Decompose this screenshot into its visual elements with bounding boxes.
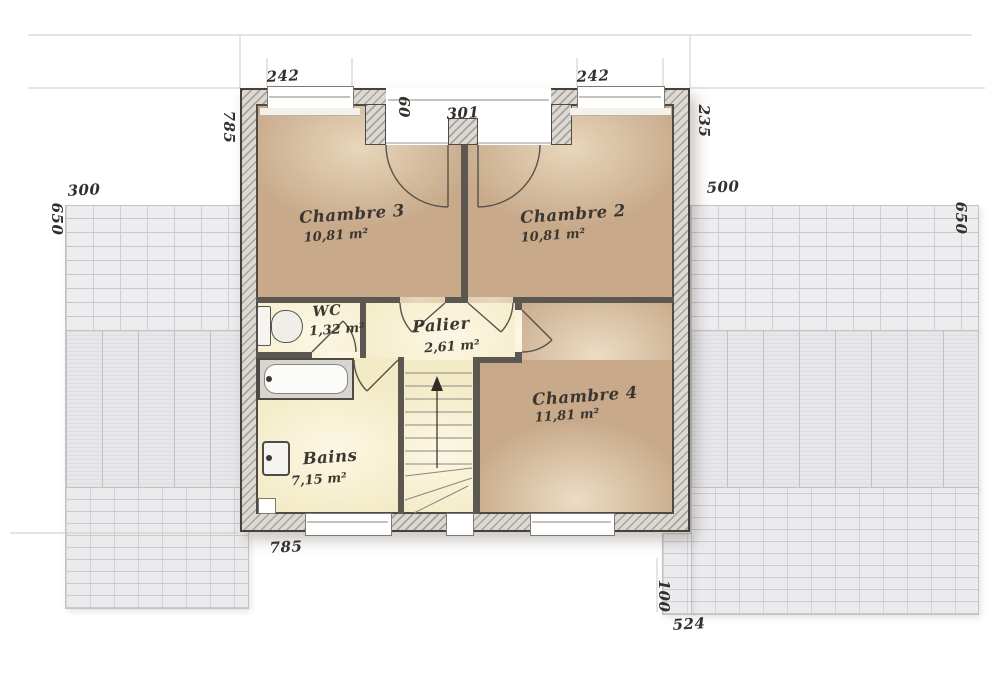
dim-top-window-right: 242 — [576, 66, 610, 86]
floor-plan-canvas: 242 60 301 242 785 235 300 650 500 650 7… — [0, 0, 1000, 695]
label-bains-name: Bains — [302, 446, 358, 469]
dim-roof-right-width: 500 — [706, 177, 740, 197]
dim-roof-left-height: 650 — [48, 203, 66, 236]
dim-bottom-wall-width: 785 — [269, 537, 303, 557]
label-wc-name: WC — [312, 302, 342, 321]
stair-treads — [405, 373, 472, 513]
dimension-lines — [10, 35, 985, 612]
dim-bottom-right-width: 524 — [672, 614, 706, 634]
dim-left-wall-height: 785 — [220, 111, 238, 144]
dim-roof-left-width: 300 — [67, 180, 101, 200]
dim-niche-depth: 60 — [395, 96, 413, 118]
dim-bottom-right-height: 100 — [655, 580, 673, 613]
label-palier-name: Palier — [412, 314, 471, 337]
linework-overlay — [0, 0, 1000, 695]
stair-direction-arrow — [431, 376, 443, 468]
dim-niche-width: 301 — [446, 103, 480, 123]
dim-top-window-left: 242 — [266, 66, 300, 86]
dim-right-wall-segment: 235 — [695, 105, 713, 138]
dim-roof-right-height: 650 — [952, 202, 970, 235]
